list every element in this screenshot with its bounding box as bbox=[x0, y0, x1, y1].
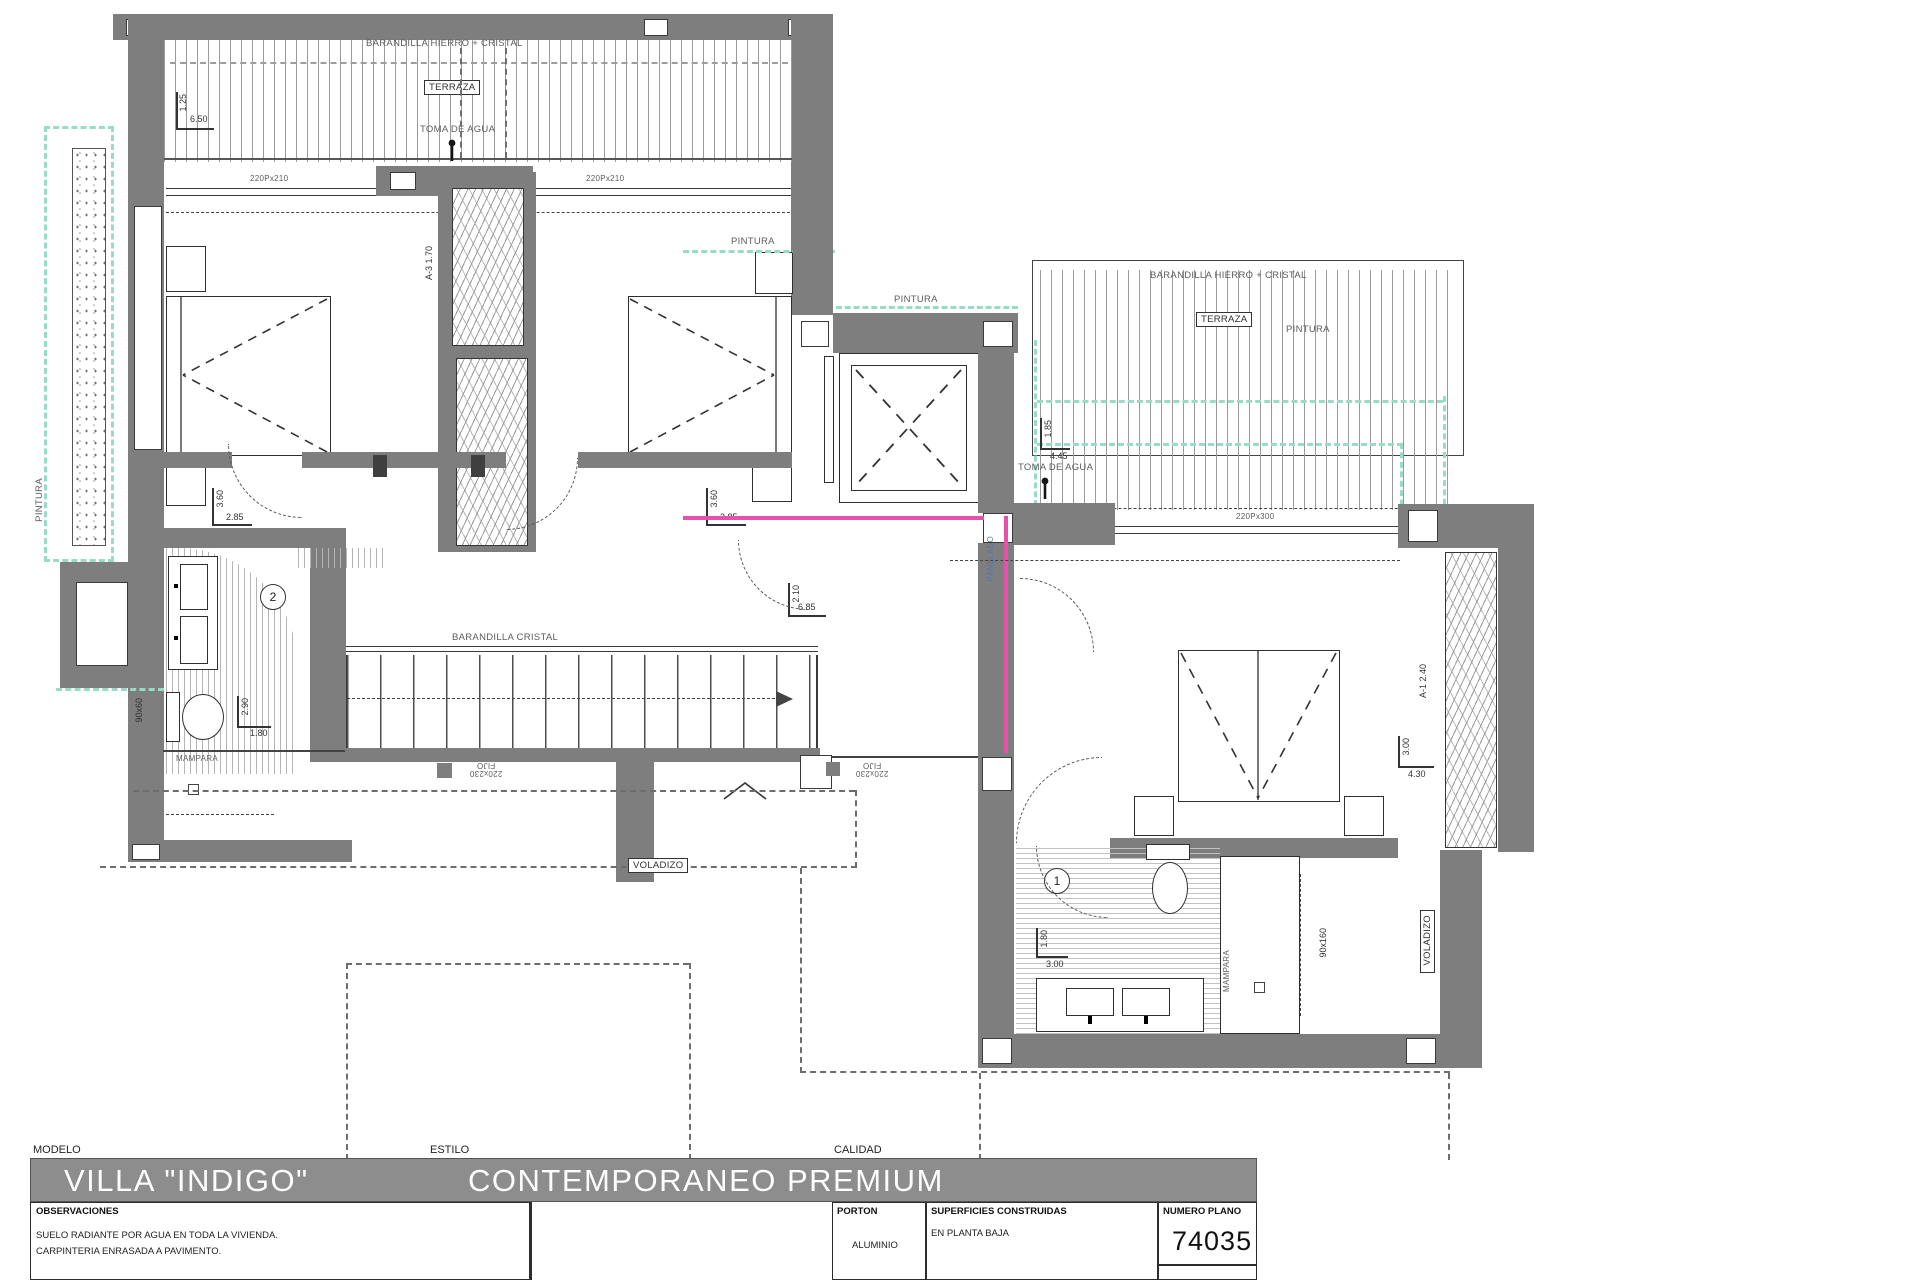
window-glazing bbox=[533, 188, 791, 196]
dim-text: 1.25 bbox=[178, 94, 188, 112]
nightstand bbox=[755, 252, 793, 294]
water-tap-label: TOMA DE AGUA bbox=[420, 124, 495, 135]
faucet-dot bbox=[1144, 1016, 1148, 1024]
overhang-dashed-line bbox=[800, 1071, 1450, 1073]
window-glazing bbox=[166, 188, 376, 196]
pintura-dashed-line bbox=[1443, 396, 1446, 514]
bed bbox=[166, 296, 331, 456]
overhang-dashed-line bbox=[950, 560, 1400, 561]
observaciones-label: OBSERVACIONES bbox=[36, 1206, 119, 1217]
dim-line bbox=[176, 128, 214, 130]
terrace-label: TERRAZA bbox=[1196, 312, 1252, 327]
bed-cover-lines bbox=[167, 297, 329, 454]
panelado-line bbox=[683, 516, 984, 520]
voladizo-text: VOLADIZO bbox=[1422, 915, 1433, 965]
walkin-shower bbox=[1220, 856, 1300, 1034]
pintura-dashed-line bbox=[1037, 400, 1443, 403]
window-mullion bbox=[826, 762, 840, 776]
door-jamb bbox=[471, 455, 485, 477]
observaciones-line1: SUELO RADIANTE POR AGUA EN TODA LA VIVIE… bbox=[36, 1230, 278, 1241]
pintura-dashed-line bbox=[1034, 340, 1037, 515]
bed-double bbox=[1178, 650, 1340, 802]
dim-text: 3.00 bbox=[1046, 959, 1064, 969]
dim-line bbox=[1036, 956, 1068, 958]
wall bbox=[128, 840, 352, 862]
mampara-label: MAMPARA bbox=[1222, 950, 1231, 992]
door-division bbox=[460, 48, 462, 158]
window-size-label: 220Px210 bbox=[586, 174, 624, 183]
fixed-window-size: 220x230 bbox=[856, 769, 889, 778]
calidad-label: CALIDAD bbox=[834, 1144, 882, 1156]
column-post bbox=[801, 321, 829, 347]
pintura-label: PINTURA bbox=[34, 478, 45, 522]
door-swing-arc bbox=[1020, 578, 1094, 652]
toilet-tank bbox=[166, 692, 180, 742]
outdoor-shower-tray bbox=[76, 582, 128, 666]
dim-line bbox=[1398, 766, 1434, 768]
dim-line bbox=[1040, 448, 1070, 450]
floor-plan-sheet: BARANDILLA HIERRO + CRISTAL TERRAZA TOMA… bbox=[0, 0, 1920, 1280]
pintura-dashed-line bbox=[1037, 443, 1403, 446]
voladizo-label: VOLADIZO bbox=[628, 858, 688, 873]
wardrobe-label: A-1 2.40 bbox=[1418, 664, 1428, 698]
overhang-dashed-line bbox=[855, 790, 857, 868]
gravel-strip bbox=[72, 148, 106, 546]
terrace-edge-line bbox=[164, 158, 792, 160]
wardrobe-label: A-3 1.70 bbox=[424, 246, 434, 280]
dim-text: 2.85 bbox=[226, 512, 244, 522]
shower-glass-line bbox=[1300, 874, 1301, 1016]
column-post bbox=[390, 172, 416, 190]
wall bbox=[164, 452, 232, 468]
wall bbox=[1440, 850, 1482, 1038]
shower-drain bbox=[1254, 982, 1265, 993]
staircase bbox=[345, 655, 818, 748]
terrace-decking bbox=[1040, 270, 1458, 510]
dim-text: 3.60 bbox=[709, 490, 719, 508]
window-glazing bbox=[1115, 526, 1399, 534]
observaciones-line2: CARPINTERIA ENRASADA A PAVIMENTO. bbox=[36, 1246, 221, 1257]
bath-floor-hatch bbox=[298, 548, 386, 568]
voladizo-text: VOLADIZO bbox=[633, 860, 683, 871]
window-size-label: 220Px210 bbox=[250, 174, 288, 183]
dim-line bbox=[1398, 736, 1400, 768]
panelado-label: PANELADO bbox=[986, 536, 995, 581]
dim-text: 4.45 bbox=[1050, 451, 1068, 461]
stair-walkline bbox=[347, 698, 775, 699]
fixed-window-size: 220x230 bbox=[470, 769, 503, 778]
window-size-label: 220Px300 bbox=[1236, 512, 1274, 521]
column-post bbox=[983, 321, 1013, 347]
shower-dashed-line bbox=[166, 814, 274, 815]
mampara-label: MAMPARA bbox=[176, 754, 218, 763]
wall bbox=[345, 748, 820, 762]
shower-size-label: 90x160 bbox=[1318, 928, 1328, 958]
bed bbox=[628, 296, 792, 456]
overhang-dashed-line bbox=[346, 963, 348, 1160]
dim-line bbox=[788, 615, 826, 617]
toma-de-agua-icon bbox=[445, 138, 459, 164]
wall bbox=[978, 353, 1014, 513]
shower-size-label: 90x60 bbox=[134, 698, 144, 723]
column-post bbox=[132, 844, 160, 860]
estilo-calidad-value: CONTEMPORANEO PREMIUM bbox=[468, 1163, 944, 1199]
door-swing-arc bbox=[738, 540, 808, 610]
numero-plano-value: 74035 bbox=[1172, 1226, 1252, 1257]
numero-plano-label: NUMERO PLANO bbox=[1163, 1206, 1241, 1217]
door-swing-arc bbox=[1016, 757, 1102, 843]
estilo-label: ESTILO bbox=[430, 1144, 469, 1156]
room-number-2-text: 2 bbox=[270, 590, 277, 604]
railing-label: BARANDILLA HIERRO + CRISTAL bbox=[366, 38, 523, 49]
door-swing-arc bbox=[228, 444, 302, 518]
dim-text: 1.85 bbox=[1043, 420, 1053, 438]
faucet-dot bbox=[1088, 1016, 1092, 1024]
sink bbox=[1066, 988, 1114, 1016]
dim-text: 4.30 bbox=[1408, 769, 1426, 779]
column-post bbox=[982, 757, 1012, 791]
panelado-line bbox=[1004, 516, 1008, 756]
water-tap-label: TOMA DE AGUA bbox=[1018, 462, 1093, 473]
balcony-edge-line bbox=[820, 756, 980, 758]
pintura-label: PINTURA bbox=[731, 236, 775, 247]
wall bbox=[133, 528, 313, 548]
door-division bbox=[505, 48, 507, 158]
dim-line bbox=[706, 524, 746, 526]
nightstand bbox=[1344, 796, 1384, 836]
dim-text: 6.50 bbox=[190, 114, 208, 124]
faucet-dot bbox=[174, 584, 178, 588]
window-mullion bbox=[437, 763, 452, 778]
dim-text: 3.00 bbox=[1401, 738, 1411, 756]
pintura-label: PINTURA bbox=[1286, 324, 1330, 335]
toma-de-agua-icon bbox=[1038, 476, 1052, 502]
titleblock-divider bbox=[530, 1202, 532, 1280]
stair-arrow bbox=[776, 691, 793, 707]
room-edge-line bbox=[163, 750, 345, 752]
pintura-dashed-line bbox=[836, 306, 1018, 309]
dim-line bbox=[1040, 418, 1042, 450]
dim-text: 1.80 bbox=[1039, 930, 1049, 948]
stair-rail bbox=[345, 646, 818, 652]
modelo-label: MODELO bbox=[33, 1144, 81, 1156]
wall bbox=[578, 452, 792, 468]
dim-line bbox=[1036, 928, 1038, 958]
dim-text: 3.60 bbox=[215, 490, 225, 508]
sink bbox=[1122, 988, 1170, 1016]
toilet-tank bbox=[1146, 844, 1190, 860]
dim-line bbox=[706, 488, 708, 526]
glass-railing-label: BARANDILLA CRISTAL bbox=[452, 632, 558, 643]
wall bbox=[1013, 503, 1115, 545]
vanity bbox=[1036, 978, 1204, 1032]
room-number-2: 2 bbox=[260, 584, 286, 610]
overhang-dashed-line bbox=[1448, 1073, 1450, 1160]
pintura-dashed-line bbox=[56, 688, 164, 691]
fixed-window-text: FIJO bbox=[863, 760, 882, 769]
terrace-label: TERRAZA bbox=[424, 80, 480, 95]
toilet-bowl bbox=[1152, 862, 1188, 914]
dim-text: 1.80 bbox=[250, 728, 268, 738]
superficies-value: EN PLANTA BAJA bbox=[931, 1228, 1009, 1239]
pintura-label: PINTURA bbox=[894, 294, 938, 305]
column-post bbox=[1406, 1038, 1436, 1064]
sink bbox=[180, 564, 208, 610]
fixed-window-label: 220x230FIJO bbox=[842, 760, 902, 777]
sink bbox=[180, 616, 208, 664]
terrace-decking bbox=[164, 40, 792, 162]
modelo-value: VILLA "INDIGO" bbox=[64, 1163, 309, 1199]
superficies-label: SUPERFICIES CONSTRUIDAS bbox=[931, 1206, 1067, 1217]
railing-line bbox=[170, 62, 788, 64]
column-post bbox=[1408, 510, 1438, 542]
overhang-dashed-line bbox=[100, 866, 857, 868]
elevator-x bbox=[852, 366, 965, 489]
wall bbox=[978, 543, 1014, 755]
wardrobe bbox=[452, 188, 524, 346]
door-swing-arc bbox=[506, 458, 578, 530]
terrace-label-text: TERRAZA bbox=[429, 82, 475, 93]
door-jamb bbox=[373, 455, 387, 477]
overhang-dashed-line bbox=[800, 868, 802, 1073]
wall bbox=[978, 753, 1014, 1036]
wardrobe bbox=[1445, 552, 1497, 848]
faucet-dot bbox=[174, 636, 178, 640]
porton-value: ALUMINIO bbox=[852, 1240, 898, 1251]
wall-right-outer bbox=[1498, 546, 1534, 852]
window-inset bbox=[134, 206, 162, 450]
terrace-label-text: TERRAZA bbox=[1201, 314, 1247, 325]
wall bbox=[113, 14, 818, 40]
overhang-dashed-line bbox=[133, 790, 855, 792]
nightstand bbox=[1134, 796, 1174, 836]
toilet-bowl bbox=[182, 694, 224, 740]
bed-cover-lines bbox=[1179, 651, 1338, 800]
column-post bbox=[644, 19, 668, 36]
bed-cover-lines bbox=[629, 297, 790, 454]
nightstand bbox=[166, 246, 206, 292]
wall bbox=[793, 232, 833, 315]
column-post bbox=[982, 1038, 1012, 1064]
voladizo-label: VOLADIZO bbox=[1420, 910, 1435, 973]
overhang-dashed-line bbox=[346, 963, 689, 965]
elevator-door bbox=[824, 356, 834, 483]
dim-line bbox=[212, 488, 214, 526]
dim-line bbox=[212, 524, 252, 526]
fixed-window-label: 220x230FIJO bbox=[456, 760, 516, 777]
overhang-dashed-line bbox=[689, 963, 691, 1160]
numero-plano-underline bbox=[1158, 1264, 1257, 1266]
fixed-window-text: FIJO bbox=[477, 760, 496, 769]
dim-line bbox=[237, 696, 239, 726]
elevator-cab bbox=[851, 365, 967, 491]
overhang-dashed-line bbox=[979, 1073, 981, 1160]
dim-text: 2.90 bbox=[240, 698, 250, 716]
porton-label: PORTON bbox=[837, 1206, 877, 1217]
railing-label: BARANDILLA HIERRO + CRISTAL bbox=[1150, 270, 1307, 281]
